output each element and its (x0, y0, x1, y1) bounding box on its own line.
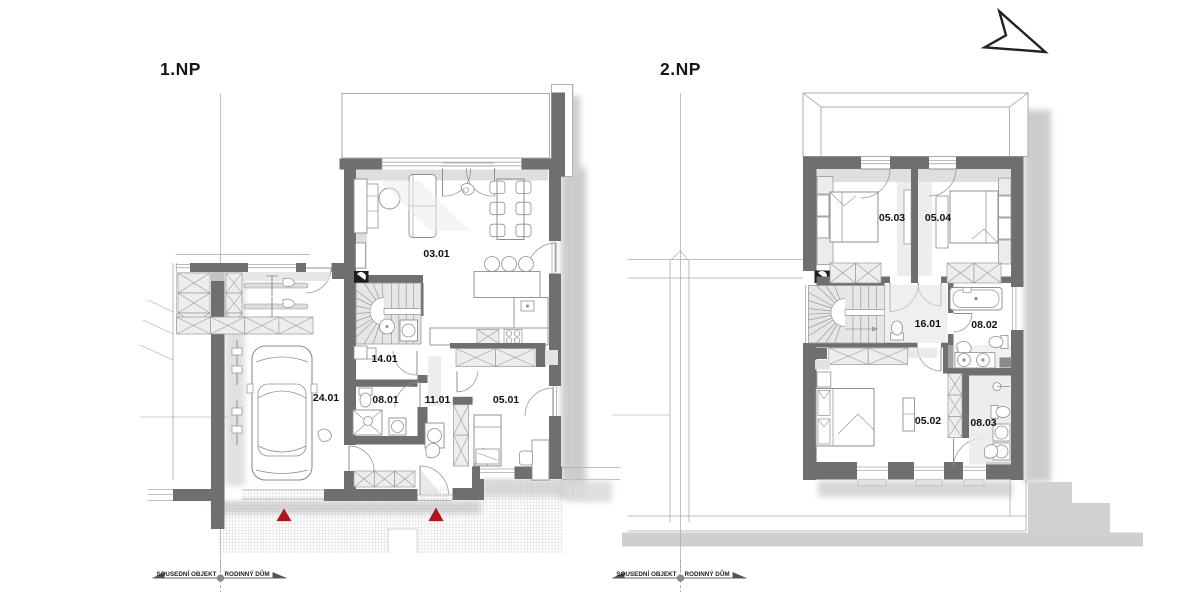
svg-text:05.02: 05.02 (915, 415, 941, 427)
svg-text:03.01: 03.01 (423, 248, 449, 260)
svg-text:SOUSEDNÍ OBJEKT: SOUSEDNÍ OBJEKT (156, 569, 216, 578)
svg-text:24.01: 24.01 (313, 392, 339, 404)
svg-text:11.01: 11.01 (425, 394, 451, 406)
svg-text:SOUSEDNÍ OBJEKT: SOUSEDNÍ OBJEKT (616, 569, 676, 578)
svg-text:16.01: 16.01 (915, 318, 941, 330)
svg-text:14.01: 14.01 (371, 353, 397, 365)
svg-text:05.01: 05.01 (493, 394, 519, 406)
svg-text:08.03: 08.03 (970, 417, 996, 429)
svg-text:2.NP: 2.NP (660, 59, 701, 79)
svg-text:1.NP: 1.NP (160, 59, 201, 79)
svg-text:05.03: 05.03 (879, 212, 905, 224)
svg-text:08.02: 08.02 (971, 319, 997, 331)
svg-text:05.04: 05.04 (925, 212, 951, 224)
svg-text:08.01: 08.01 (372, 394, 398, 406)
